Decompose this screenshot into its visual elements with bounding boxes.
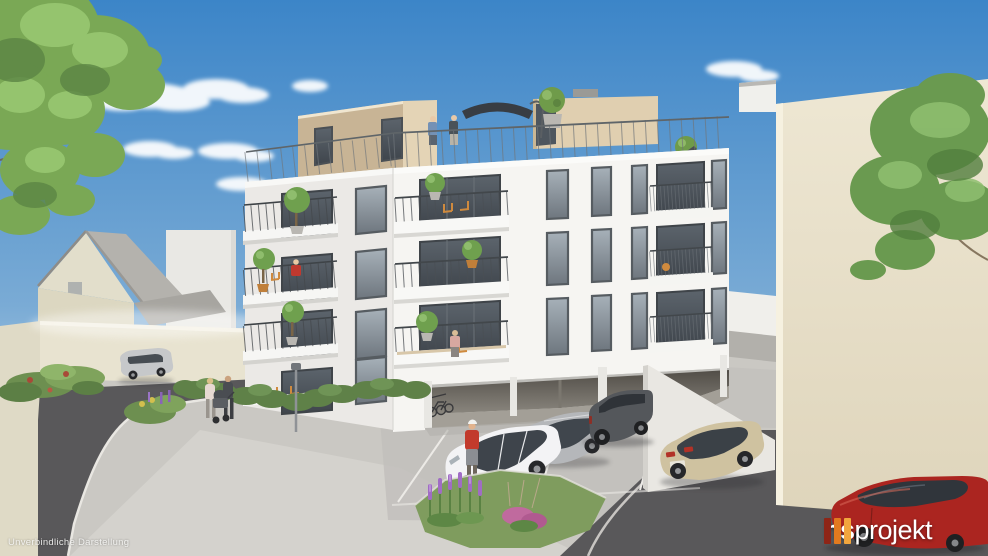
rooftop-unit (573, 89, 598, 97)
car-silver-hatchback (118, 348, 174, 385)
brand-logo: hsprojekt (824, 516, 932, 544)
penthouse-window (315, 127, 332, 165)
sw-windows (356, 186, 386, 404)
courtyard-garage (728, 291, 776, 338)
watermark-disclaimer: Unverbindliche Darstellung (8, 537, 129, 548)
e-balcony-chair (662, 263, 670, 271)
horizon-haze (30, 310, 270, 338)
left-edge-wall (0, 321, 40, 556)
architectural-rendering: Unverbindliche Darstellung hsprojekt (0, 0, 988, 556)
penthouse-window (382, 118, 402, 161)
logo-text-light: projekt (855, 515, 933, 545)
logo-bars-icon (824, 516, 852, 546)
scene-svg (0, 0, 988, 556)
